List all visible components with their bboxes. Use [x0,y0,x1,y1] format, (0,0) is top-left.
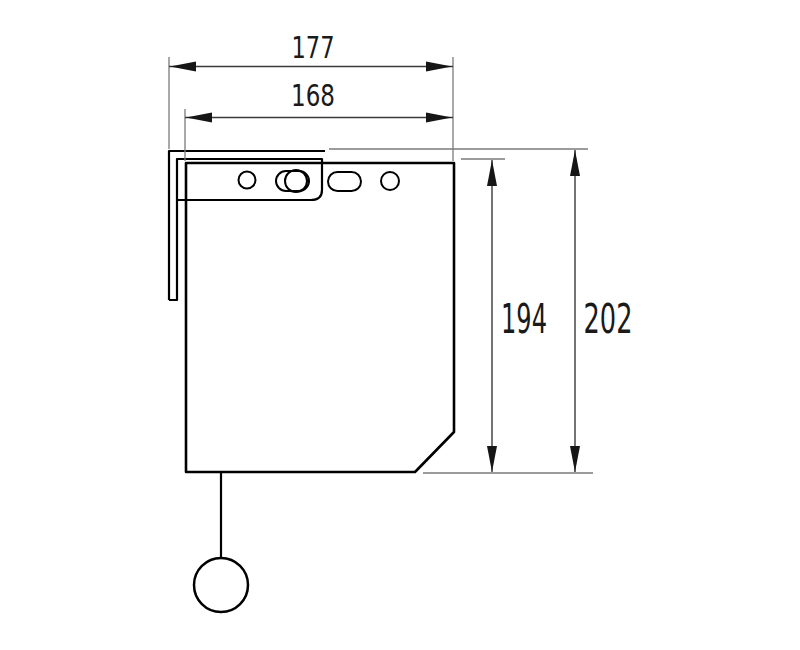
dim-arrow-width-outer-left [170,62,196,72]
dim-label-width-outer: 177 [292,30,335,65]
bracket-inner-profile [169,159,322,300]
dimension-width-inner: 168 [185,78,453,123]
technical-drawing-canvas: 177 168 194 202 [0,0,800,650]
dimension-height-overall: 202 [570,150,633,472]
dim-label-width-inner: 168 [291,78,335,113]
body-slot [328,172,361,191]
extension-lines [169,57,593,473]
dim-label-height-overall: 202 [584,295,633,343]
dimension-width-outer: 177 [169,30,453,72]
bracket-slot-circle [285,170,307,192]
dim-arrow-width-inner-right [426,113,452,123]
dim-arrow-height-body-bottom [487,446,497,472]
bracket-hole-circle [239,172,256,189]
dimension-height-body: 194 [487,160,547,472]
dim-arrow-height-body-top [487,160,497,186]
body-hole-circle [381,172,399,190]
bracket-outer-profile [169,151,325,300]
cord-ball [194,558,248,612]
body-outline [186,163,454,472]
drawing-svg: 177 168 194 202 [0,0,800,650]
dim-arrow-height-overall-top [570,150,580,176]
dim-arrow-width-inner-left [186,113,212,123]
dim-arrow-height-overall-bottom [570,446,580,472]
dim-label-height-body: 194 [501,295,547,343]
part-geometry [169,151,454,612]
dim-arrow-width-outer-right [426,62,452,72]
